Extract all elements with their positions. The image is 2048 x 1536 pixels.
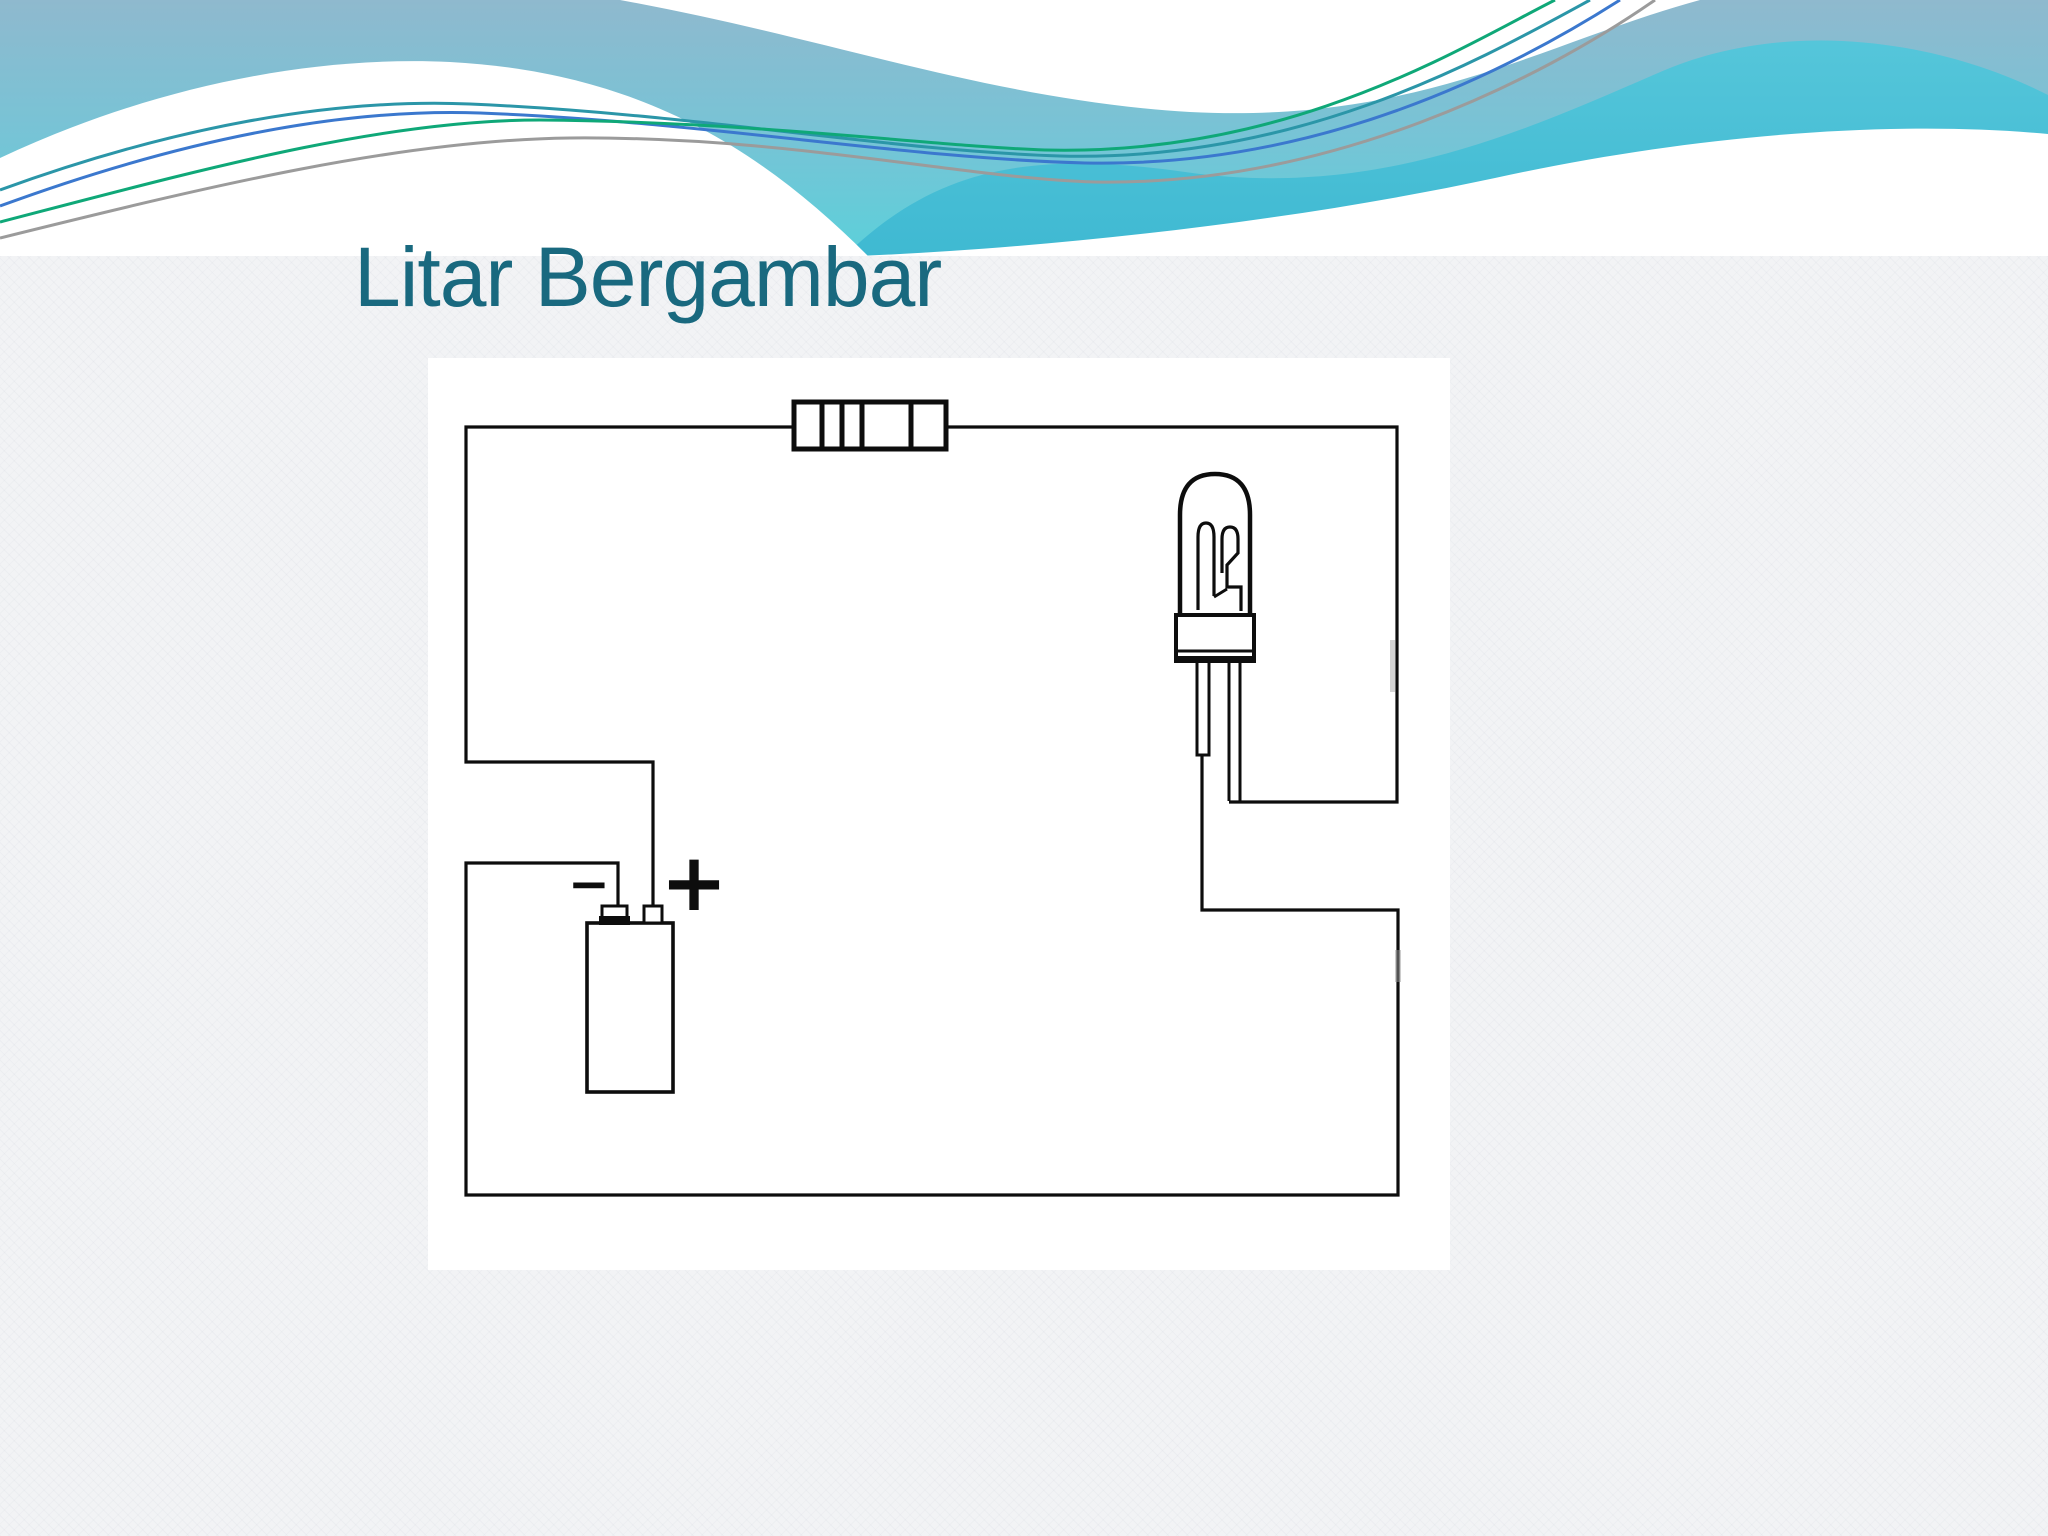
artifact-gray-2 — [1395, 950, 1401, 982]
circuit-diagram: − + — [428, 358, 1450, 1270]
artifact-gray-1 — [1390, 640, 1395, 692]
bulb-figure — [1176, 474, 1254, 801]
page-title: Litar Bergambar — [354, 235, 941, 319]
bulb-left-lead — [1197, 661, 1209, 755]
battery-figure: − + — [568, 836, 727, 1092]
header-wave-graphic — [0, 0, 2048, 256]
bulb-base — [1176, 615, 1254, 661]
battery-body — [587, 923, 673, 1092]
wire-positive-loop — [466, 427, 1397, 906]
battery-positive-sign: + — [660, 836, 727, 929]
slide: Litar Bergambar — [0, 0, 2048, 1536]
resistor-body — [794, 402, 946, 449]
battery-terminal-shade — [599, 916, 630, 925]
battery-terminal-positive — [644, 906, 662, 923]
resistor-figure — [794, 402, 946, 449]
circuit-diagram-panel: − + — [428, 358, 1450, 1270]
battery-negative-sign: − — [568, 855, 610, 913]
